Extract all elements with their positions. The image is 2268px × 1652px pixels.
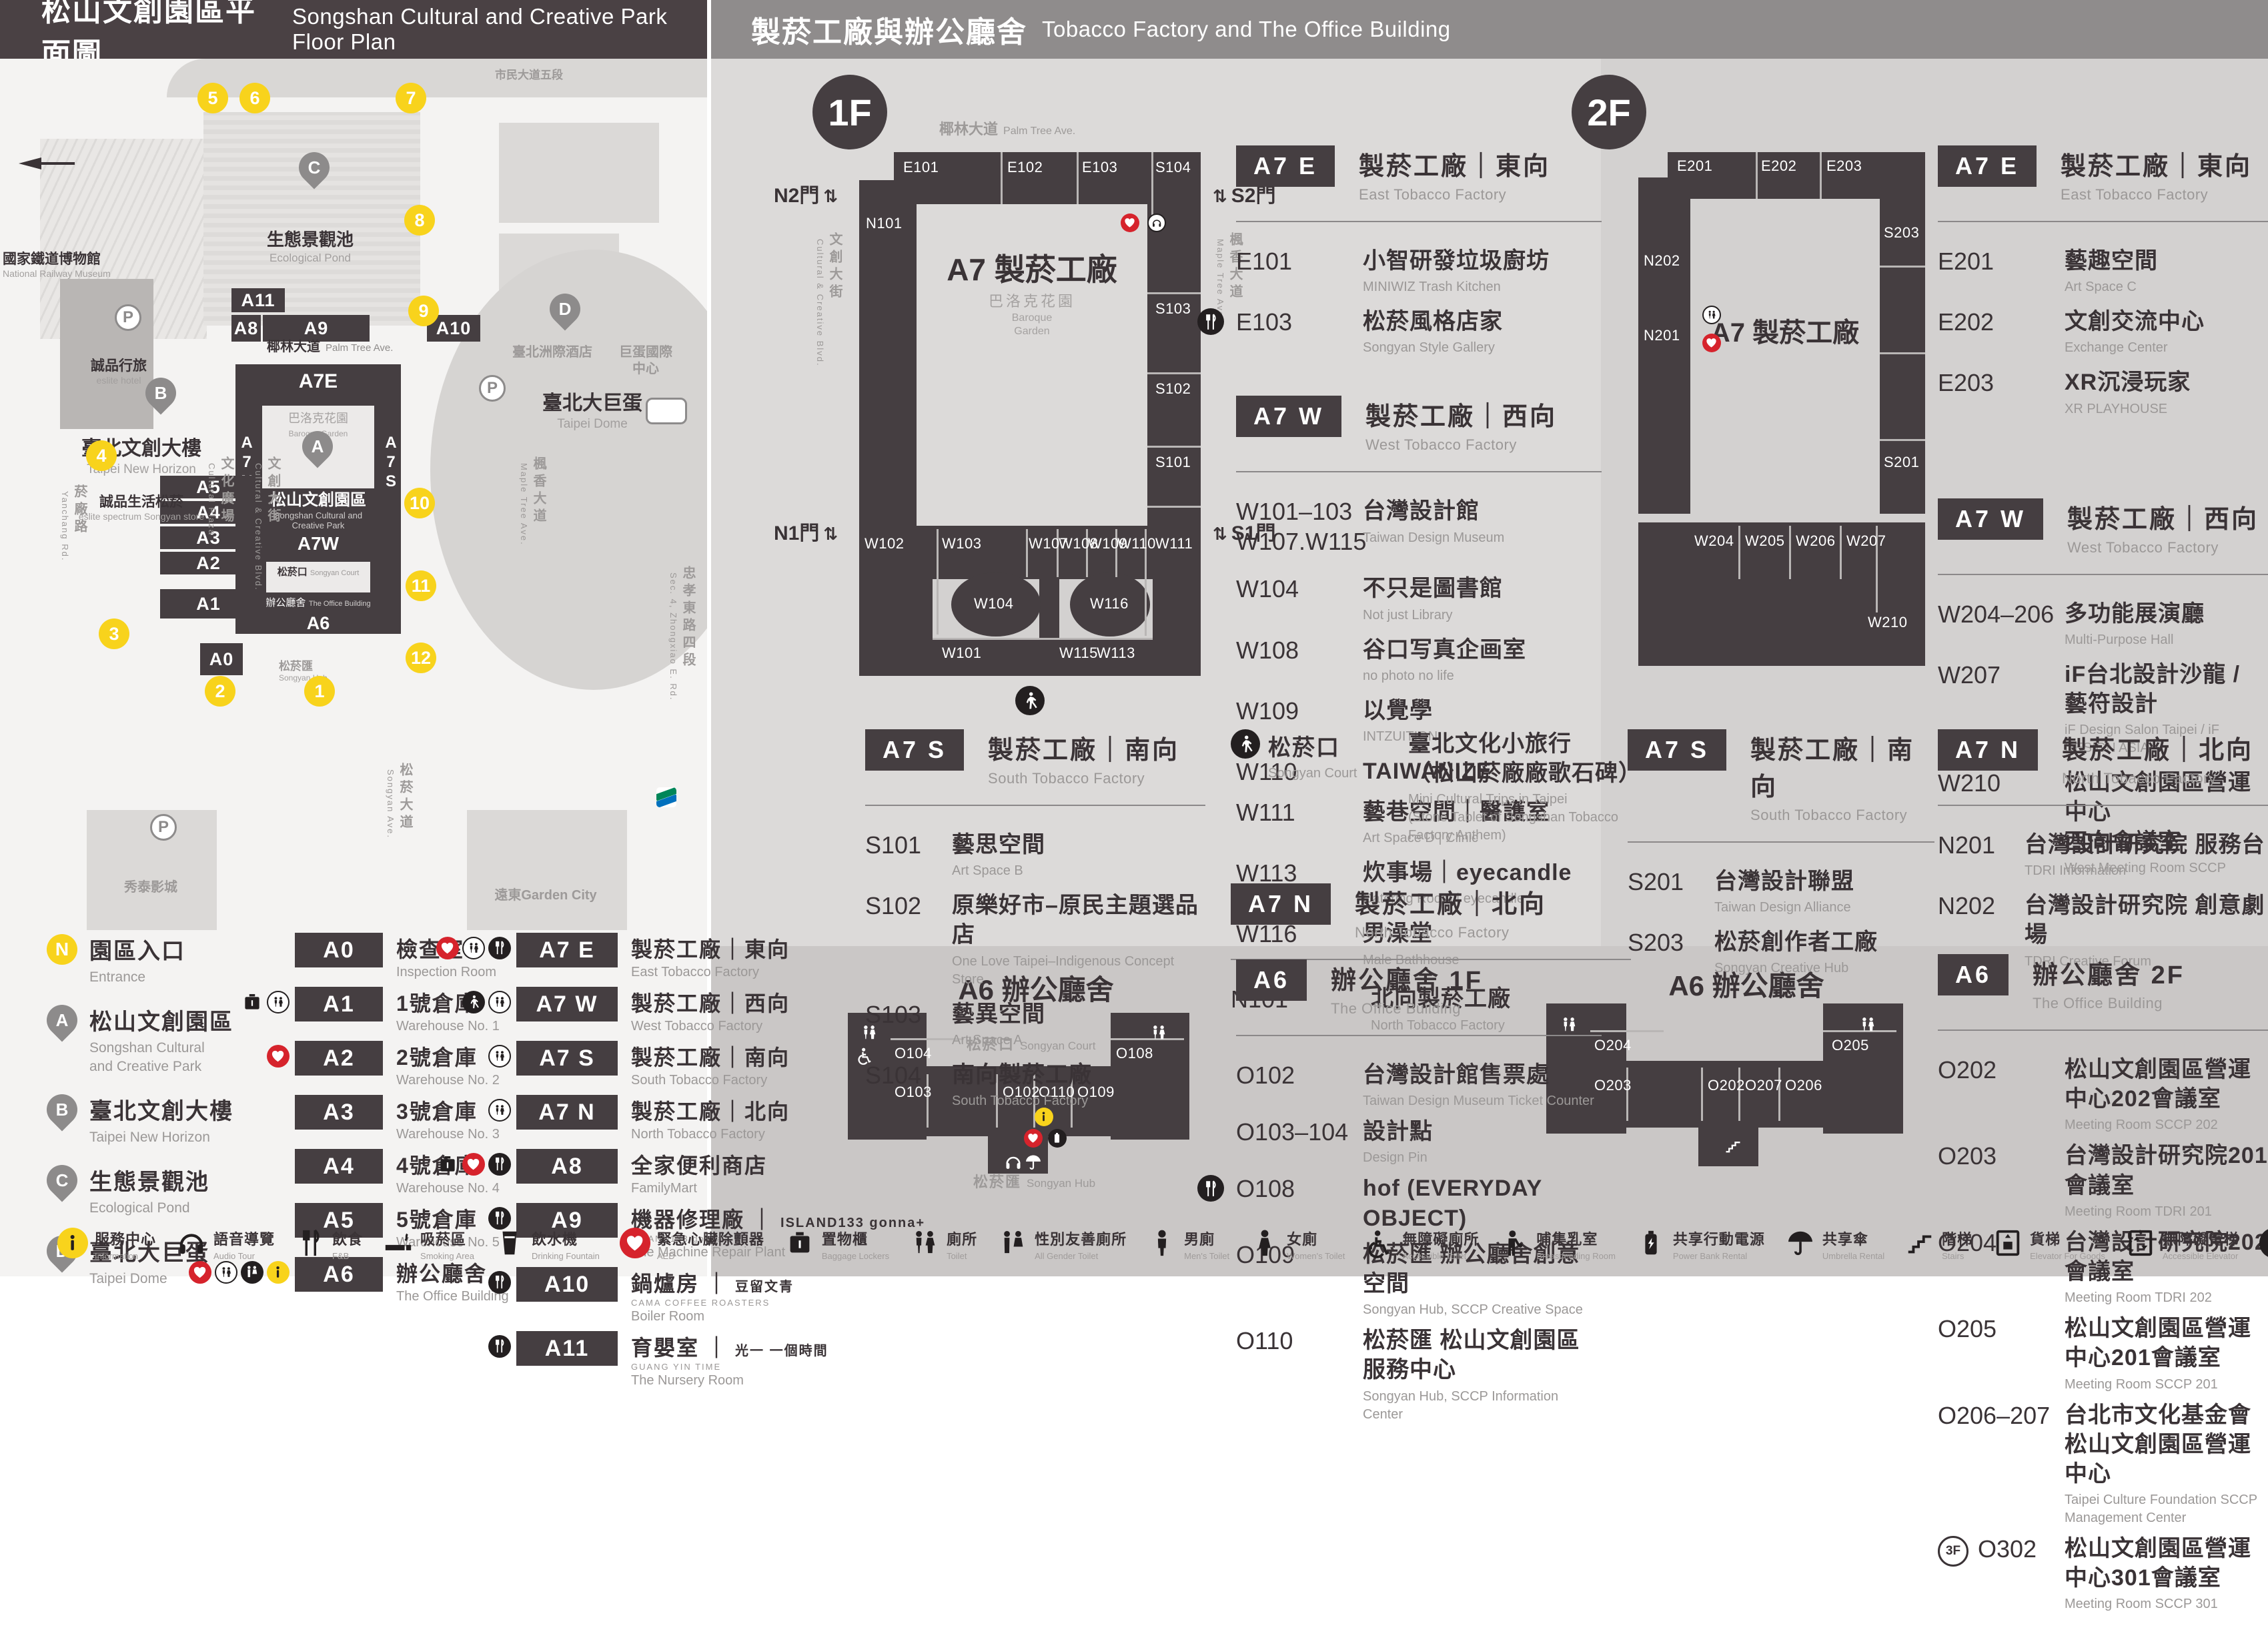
room-name-zh: 藝思空間 [952,830,1045,859]
map-street-5: 忠孝東路四段Sec. 4, Zhongxiao E. Rd. [668,566,698,701]
facility-text: 置物櫃Baggage Lockers [822,1228,889,1261]
map-label-4: 誠品生活松菸eslite spectrum Songyan store [79,494,204,523]
street-palm-tree-ave: 椰林大道Palm Tree Ave. [267,339,393,356]
room-code: O203 [1938,1141,2065,1220]
section-title: 辦公廳舍 2FThe Office Building [2033,954,2185,1012]
legend-row-icons [211,933,290,937]
fnb-icon [488,937,511,959]
list-row-O205: O205松山文創園區營運中心201會議室Meeting Room SCCP 20… [1938,1314,2268,1393]
room-name: 松山文創園區營運中心301會議室Meeting Room SCCP 301 [2065,1534,2268,1613]
section-title: 製菸工廠｜北向North Tobacco Factory [1355,883,1546,941]
room-name: 台灣設計聯盟Taiwan Design Alliance [1714,867,1854,917]
plan-1f: E101E102E103S104S103S102S101N101W102W103… [859,152,1201,699]
legend-block-A0: A0 [295,933,383,967]
nursing-icon [1499,1228,1530,1258]
locker-icon [436,1153,459,1176]
locker-icon [784,1228,815,1258]
legend-row-en: FamilyMart [631,1181,767,1196]
room-name: 藝異空間Art Space A [952,999,1045,1050]
women-icon [1249,1228,1280,1258]
facility-2: 飲食F&B [295,1228,363,1261]
facility-en: Accessible Elevator [2163,1251,2239,1261]
room-name-en: Taiwan Design Alliance [1714,899,1854,917]
room-W207: W207 [1846,532,1886,550]
legend-row-icons [432,987,511,1013]
legend-block-A7 S: A7 S [516,1041,618,1076]
facility-6: 置物櫃Baggage Lockers [784,1228,889,1261]
section-head: A7 W製菸工廠｜西向West Tobacco Factory [1938,498,2268,556]
trip-en: Mini Cultural Trips in Taipei(Stone Tabl… [1408,791,1631,845]
section-title-en: West Tobacco Factory [2067,539,2259,556]
legend-row-zh: 製菸工廠｜南向 [631,1041,790,1072]
park-map: A7E巴洛克花園Baroque GardenA松山文創園區Songshan Cu… [0,59,707,933]
section-title-en: West Tobacco Factory [1365,436,1557,454]
legend-row-A10: A10鍋爐房｜豆留文青CAMA COFFEE ROASTERSBoiler Ro… [432,1267,925,1324]
toilet-icon [1702,306,1721,324]
section-title-zh: 製菸工廠｜西向 [2067,498,2259,535]
header-right: 製菸工廠與辦公廳舍 Tobacco Factory and The Office… [707,0,2268,59]
legend-row-en: The Nursery Room [631,1373,828,1388]
facility-text: 無障礙廁所Accessible Toilet [1402,1228,1479,1261]
section-title-zh: 製菸工廠｜西向 [1365,396,1557,432]
map-entrance-5: 5 [197,83,228,113]
room-W210: W210 [1868,614,1907,631]
section-rule [1938,221,2268,222]
legend-place-en: Entrance [89,968,185,986]
room-name-zh: 台北市文化基金會松山文創園區營運中心 [2065,1400,2268,1489]
legend-row-icons [432,1041,511,1068]
facility-zh: 共享行動電源 [1673,1228,1765,1249]
section-title-zh: 製菸工廠與辦公廳舍 [751,8,1027,51]
page-title-en: Songshan Cultural and Creative Park Floo… [292,4,707,55]
room-name-zh: 文創交流中心 [2065,307,2205,336]
plan-2f-divider-5 [1738,526,1740,579]
section-松菸口: 松菸口Songyan Court臺北文化小旅行（松山菸廠廠歌石碑）Mini Cu… [1231,729,1631,845]
room-code: W204–206 [1938,599,2065,649]
section-title-zh: 辦公廳舍 1F [1331,959,1483,996]
legend-row-text: 製菸工廠｜西向West Tobacco Factory [631,987,790,1034]
section-title: 製菸工廠｜西向West Tobacco Factory [2067,498,2259,556]
facility-text: 無障礙電梯Accessible Elevator [2163,1228,2239,1261]
room-name: 南向製菸工廠South Tobacco Factory [952,1060,1092,1110]
room-name: 台灣設計館Taiwan Design Museum [1363,496,1504,556]
facility-8: 性別友善廁所All Gender Toilet [997,1228,1127,1261]
room-name-zh: 松菸風格店家 [1363,307,1503,336]
toilet-icon [488,1099,511,1122]
map-street-1: 文創大街Cultural & Creative Blvd. [253,456,283,591]
aed-icon [462,1153,485,1176]
room-name-en: Exchange Center [2065,339,2205,357]
map-street-4: 松菸大道Songyan Ave. [386,763,415,839]
section-badge: A6 [1236,959,1307,1001]
legend-row-icons [211,1041,290,1068]
legend-row-en: West Tobacco Factory [631,1019,790,1034]
room-name-en: Songyan Hub, SCCP Creative Space [1363,1301,1602,1319]
facility-text: 共享行動電源Power Bank Rental [1673,1228,1765,1261]
room-S103: S103 [1155,300,1191,318]
legend-row-text: 製菸工廠｜東向East Tobacco Factory [631,933,790,980]
facility-text: 貨梯Elevator For Goods [2030,1228,2105,1261]
elevator-icon [2125,1228,2156,1258]
room-code: S203 [1628,927,1714,977]
section-title: 製菸工廠｜北向North Tobacco Factory [2062,729,2253,787]
room-code: N201 [1938,830,2025,880]
room-S104: S104 [1155,159,1191,176]
list-row-W101–103: W101–103W107.W115台灣設計館Taiwan Design Muse… [1236,496,1602,556]
trip-zh: 臺北文化小旅行（松山菸廠廠歌石碑） [1408,729,1631,788]
aed-icon [267,1045,290,1068]
floor-3f-badge: 3F [1938,1536,1968,1567]
facility-18: 臺北文化小旅行 （松山菸廠廠歌石碑）Mini Cultural Trips in… [2259,1228,2268,1271]
legend-symbol: B [47,1093,89,1125]
facility-en: Accessible Toilet [1402,1251,1479,1261]
list-row-O110: O110松菸匯 松山文創園區服務中心Songyan Hub, SCCP Info… [1236,1326,1602,1423]
legend-row-icons [211,1203,290,1207]
legend-block-A3: A3 [295,1095,383,1130]
facility-15: 階梯Stairs [1904,1228,1972,1261]
place-pin-icon: A [40,999,83,1042]
room-name-zh: 台灣設計研究院 創意劇場 [2025,891,2268,949]
room-name-zh: 松菸創作者工廠 [1714,927,1878,957]
floor-plan-poster: 松山文創園區平面圖 Songshan Cultural and Creative… [0,0,2268,1276]
legend-row-zh: 全家便利商店 [631,1149,767,1180]
aed-icon [620,1228,650,1258]
room-W103: W103 [942,535,981,552]
facility-zh: 共享傘 [1822,1228,1884,1249]
plan-2f-divider-1 [1820,152,1822,199]
room-panel-7: A6辦公廳舍 2FThe Office BuildingO202松山文創園區營運… [1938,954,2268,1652]
legend-row-zh: 育嬰室｜光一 一個時間GUANG YIN TIME [631,1331,828,1372]
map-label-5: 臺北大巨蛋Taipei Dome [542,391,642,432]
section-head: A7 S製菸工廠｜南向South Tobacco Factory [1628,729,1934,824]
plan-a6-2f-divider-3 [1738,1068,1740,1121]
bus-stop-icon [646,398,687,424]
section-badge: A7 W [1236,396,1341,437]
section-A7 N: A7 N製菸工廠｜北向North Tobacco FactoryN201台灣設計… [1938,729,2268,971]
facility-zh: 服務中心 [95,1228,156,1249]
map-street-2: 楓香大道Maple Tree Ave. [519,456,548,546]
room-name-en: Songyan Style Gallery [1363,339,1503,357]
room-name-zh: 台灣設計研究院 服務台 [2025,830,2265,859]
legend-block-A1: A1 [295,987,383,1021]
section-title-en: North Tobacco Factory [1355,924,1546,941]
facility-zh: 哺集乳室 [1536,1228,1616,1249]
plan-1f-divider-3 [1147,292,1201,294]
room-W204: W204 [1694,532,1734,550]
map-label-2: 誠品行旅eslite hotel [91,358,147,387]
room-name-en: Art Space B [952,862,1045,880]
section-head: A7 W製菸工廠｜西向West Tobacco Factory [1236,396,1602,454]
map-block-A0: A0 [200,643,243,675]
facility-text: 緊急心臟除顫器AED [657,1228,764,1261]
room-name-en: Taipei Culture Foundation SCCP Managemen… [2065,1491,2268,1527]
room-E203: E203 [1826,157,1862,175]
room-code: E103 [1236,307,1363,357]
songyan-hub-label: 松菸匯Songyan Hub [973,1170,1095,1192]
section-A7 E: A7 E製菸工廠｜東向East Tobacco FactoryE101小智研發垃… [1236,145,1602,357]
list-row-W104: W104不只是圖書館Not just Library [1236,574,1602,624]
map-area-5 [60,279,153,429]
section-head: A7 N製菸工廠｜北向North Tobacco Factory [1938,729,2268,787]
room-name-zh: iF台北設計沙龍 / 藝符設計 [2065,660,2268,719]
room-name: 設計點Design Pin [1363,1117,1433,1167]
room-name-en: Taiwan Design Museum [1363,529,1504,547]
section-title-zh: 製菸工廠｜北向 [2062,729,2253,766]
map-entrance-8: 8 [404,205,435,236]
facility-17: 無障礙電梯Accessible Elevator [2125,1228,2239,1261]
room-S203: S203 [1884,224,1919,242]
toilet-icon [267,991,290,1013]
legend-symbol: A [47,1003,89,1036]
section-rule [1938,1029,2268,1031]
facility-text: 服務中心Information [95,1228,156,1261]
room-code: O206–207 [1938,1400,2065,1528]
header-left: 松山文創園區平面圖 Songshan Cultural and Creative… [0,0,707,59]
room-code: O103–104 [1236,1117,1363,1167]
section-title: 製菸工廠｜東向East Tobacco Factory [1359,145,1550,203]
room-code: E203 [1938,368,2065,418]
plan-2f-divider-4 [1880,439,1925,441]
section-title-zh: 製菸工廠｜東向 [2061,145,2252,182]
facility-text: 吸菸區Smoking Area [420,1228,474,1261]
room-name-zh: 小智研發垃圾廚坊 [1363,246,1550,276]
legend-row-en: East Tobacco Factory [631,965,790,980]
map-area-3 [499,123,659,223]
songyan-court-en: Songyan Court [1268,766,1408,781]
legend-block-A11: A11 [516,1331,618,1366]
room-code: E202 [1938,307,2065,357]
map-block-A9: A9 [263,315,370,342]
list-row-S201: S201台灣設計聯盟Taiwan Design Alliance [1628,867,1934,917]
room-S102: S102 [1155,380,1191,398]
songyan-court-section: 松菸口Songyan Court臺北文化小旅行（松山菸廠廠歌石碑）Mini Cu… [1231,729,1631,845]
map-block-A2: A2 [160,552,257,574]
section-badge: A7 S [865,729,964,771]
section-A6: A6辦公廳舍 1FThe Office BuildingO102台灣設計館售票處… [1236,959,1602,1424]
facility-text: 共享傘Umbrella Rental [1822,1228,1884,1261]
room-name-en: Art Space A [952,1031,1045,1050]
trip-icon [462,991,485,1013]
map-entrance-7: 7 [396,83,426,113]
plan-1f-divider-1 [1077,152,1079,204]
room-E202: E202 [1761,157,1796,175]
room-name-en: Not just Library [1363,606,1503,625]
facility-text: 廁所Toilet [947,1228,977,1261]
room-O205: O205 [1832,1037,1869,1054]
legend-block-A4: A4 [295,1149,383,1184]
legend-row-text: 製菸工廠｜北向North Tobacco Factory [631,1095,790,1142]
map-entrance-10: 10 [404,488,435,518]
room-W110: W110 [1117,535,1156,552]
goods-elevator-icon [1993,1228,2023,1258]
room-name-en: Meeting Room SCCP 301 [2065,1595,2268,1613]
section-title: 製菸工廠｜南向South Tobacco Factory [988,729,1179,787]
facility-text: 飲食F&B [332,1228,363,1261]
info-icon [57,1228,88,1258]
room-code: W104 [1236,574,1363,624]
map-entrance-11: 11 [406,570,436,601]
gate-N2門: N2門⇅ [774,179,842,208]
legend-row-A7 W: A7 W製菸工廠｜西向West Tobacco Factory [432,987,925,1034]
plan-2f-divider-3 [1880,352,1925,354]
room-name-en: Meeting Room TDRI 202 [2065,1289,2268,1307]
legend-row-icons [432,1095,511,1122]
facility-en: Power Bank Rental [1673,1251,1765,1261]
legend-row-icons [211,1095,290,1099]
room-name-en: One Love Taipei–Indigenous Concept Store [952,953,1205,989]
room-code: O102 [1236,1060,1363,1110]
legend-row-A8: A8全家便利商店FamilyMart [432,1149,925,1196]
legend-block-A7 N: A7 N [516,1095,618,1130]
facility-text: 哺集乳室Breastfeeding Room [1536,1228,1616,1261]
list-row-W108: W108谷口写真企画室no photo no life [1236,635,1602,685]
map-entrance-3: 3 [99,618,129,649]
facility-en: Information [95,1251,156,1261]
legend-row-en: North Tobacco Factory [631,1127,790,1142]
list-row-O206–207: O206–207台北市文化基金會松山文創園區營運中心Taipei Culture… [1938,1400,2268,1528]
plan-1f-divider-8 [1026,529,1028,577]
toilet-icon [488,1045,511,1068]
section-badge: A7 E [1938,145,2037,187]
map-entrance-1: 1 [304,676,335,707]
plan-2f-divider-2 [1880,266,1925,268]
room-E101: E101 [903,159,939,176]
list-row-E202: E202文創交流中心Exchange Center [1938,307,2268,357]
room-O206: O206 [1785,1077,1822,1094]
room-name: XR沉浸玩家XR PLAYHOUSE [2065,368,2191,418]
map-entrance-2: 2 [205,676,235,707]
room-W115: W115 [1059,645,1098,662]
facility-zh: 吸菸區 [420,1228,474,1249]
section-head: A7 E製菸工廠｜東向East Tobacco Factory [1236,145,1602,203]
room-code: S201 [1628,867,1714,917]
map-block-A8: A8 [231,315,261,342]
facility-en: Elevator For Goods [2030,1251,2105,1261]
facility-4: 飲水機Drinking Fountain [494,1228,600,1261]
list-row-O102: O102台灣設計館售票處Taiwan Design Museum Ticket … [1236,1060,1602,1110]
section-title-zh: 製菸工廠｜北向 [1355,883,1546,920]
facility-zh: 女廁 [1287,1228,1345,1249]
map-entrance-12: 12 [406,643,436,673]
section-head: A7 S製菸工廠｜南向South Tobacco Factory [865,729,1205,787]
room-E103: E103 [1082,159,1117,176]
legend-row-icons [432,1267,511,1294]
room-code: E101 [1236,246,1363,296]
list-row-W204–206: W204–206多功能展演廳Multi-Purpose Hall [1938,599,2268,649]
room-W102: W102 [865,535,904,552]
plan-2f-title: A7 製菸工廠 [1711,311,1859,350]
plan-1f-divider-4 [1147,372,1201,374]
room-name-zh: 設計點 [1363,1117,1433,1146]
facility-10: 女廁Women's Toilet [1249,1228,1345,1261]
legend-row-zh: 製菸工廠｜北向 [631,1095,790,1126]
plan-1f-divider-7 [937,529,939,635]
facility-5: 緊急心臟除顫器AED [620,1228,764,1261]
facility-0: 服務中心Information [57,1228,156,1261]
water-icon [494,1228,525,1258]
legend-block-A7 W: A7 W [516,987,618,1021]
room-name-en: Taiwan Design Museum Ticket Counter [1363,1092,1594,1110]
map-entrance-6: 6 [239,83,270,113]
facility-text: 性別友善廁所All Gender Toilet [1035,1228,1127,1261]
map-label-1: 生態景觀池Ecological Pond [267,229,354,265]
section-rule [1236,221,1602,222]
section-title-en: The Office Building [1331,1000,1483,1017]
parking-icon-0: P [115,304,141,331]
room-name-zh: 台灣設計聯盟 [1714,867,1854,896]
section-title-en: East Tobacco Factory [2061,186,2252,203]
plan-1f-divider-5 [1147,446,1201,448]
aed-icon [1702,334,1721,352]
room-O202: O202 [1708,1077,1745,1094]
facility-en: Men's Toilet [1184,1251,1229,1261]
room-name: 原樂好市–原民主題選品店One Love Taipei–Indigenous C… [952,891,1205,988]
room-name-zh: 松山文創園區營運中心202會議室 [2065,1055,2268,1114]
facility-en: All Gender Toilet [1035,1251,1127,1261]
office-building-label: 辦公廳舍 The Office Building [235,596,401,609]
room-name-en: TDRI Information [2025,862,2265,880]
place-pin-icon: C [40,1159,83,1202]
facility-en: Umbrella Rental [1822,1251,1884,1261]
room-code: O110 [1236,1326,1363,1423]
legend-col-2: A7 E製菸工廠｜東向East Tobacco FactoryA7 W製菸工廠｜… [432,933,925,1395]
facility-1: 語音導覽Audio Tour [176,1228,275,1261]
section-title-en: South Tobacco Factory [988,770,1179,787]
plan-1f-title: A7 製菸工廠 [947,246,1117,290]
legend-block-A7 E: A7 E [516,933,618,967]
legend-symbol: N [47,933,89,965]
room-name-en: Songyan Creative Hub [1714,959,1878,977]
map-label-8: 秀泰影城 [124,879,177,896]
plan-1f-divider-0 [1001,152,1003,204]
room-name-zh: 不只是圖書館 [1363,574,1503,603]
legend-row-en: South Tobacco Factory [631,1073,790,1088]
a6-map-label: A6 [235,612,401,634]
list-row-O108: O108hof (EVERYDAY OBJECT) [1236,1174,1602,1232]
room-name: 藝思空間Art Space B [952,830,1045,880]
legend-row-A7 E: A7 E製菸工廠｜東向East Tobacco Factory [432,933,925,980]
section-badge: A7 E [1236,145,1335,187]
map-area-9 [467,810,627,930]
room-name-zh: 南向製菸工廠 [952,1060,1092,1090]
section-head: A6辦公廳舍 2FThe Office Building [1938,954,2268,1012]
aed-icon [1121,214,1139,232]
facility-9: 男廁Men's Toilet [1147,1228,1229,1261]
section-badge: A7 N [1231,883,1331,925]
room-code: E201 [1938,246,2065,296]
legend-place-zh: 生態景觀池 [89,1164,209,1196]
room-name: 松山文創園區營運中心202會議室Meeting Room SCCP 202 [2065,1055,2268,1134]
room-name-en: Meeting Room SCCP 202 [2065,1116,2268,1134]
room-name: hof (EVERYDAY OBJECT) [1363,1174,1602,1232]
trip-item: 臺北文化小旅行（松山菸廠廠歌石碑）Mini Cultural Trips in … [1408,729,1631,845]
legend-place-en: Ecological Pond [89,1199,209,1217]
street-top-label: 椰林大道Palm Tree Ave. [939,117,1075,139]
room-name-en: XR PLAYHOUSE [2065,400,2191,418]
floor-badge-2f: 2F [1572,75,1646,149]
list-row-O302: 3FO302松山文創園區營運中心301會議室Meeting Room SCCP … [1938,1534,2268,1613]
facility-text: 階梯Stairs [1942,1228,1972,1261]
section-title-en: East Tobacco Factory [1359,186,1550,203]
room-name: 松菸匯 松山文創園區服務中心Songyan Hub, SCCP Informat… [1363,1326,1602,1423]
room-name: 谷口写真企画室no photo no life [1363,635,1526,685]
legend-row-zh: 製菸工廠｜西向 [631,987,790,1017]
legend-row-A7 N: A7 N製菸工廠｜北向North Tobacco Factory [432,1095,925,1142]
section-title: 製菸工廠｜東向East Tobacco Factory [2061,145,2252,203]
room-name-en: Design Pin [1363,1149,1433,1167]
plan-2f-divider-7 [1840,526,1842,579]
section-title: 製菸工廠｜南向South Tobacco Factory [1750,729,1934,824]
